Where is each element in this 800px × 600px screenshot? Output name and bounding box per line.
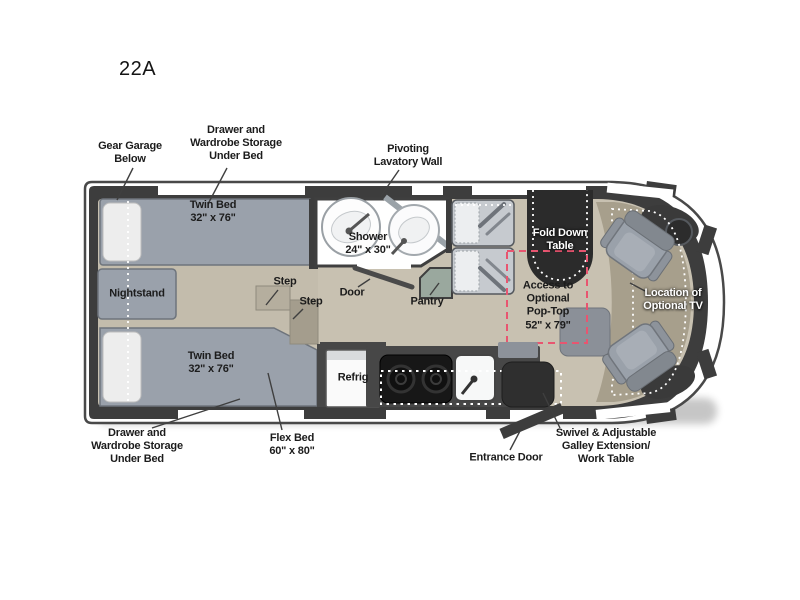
model-title: 22A (119, 58, 156, 81)
galley-extension-counter (560, 308, 610, 356)
floorplan-drawing (0, 0, 800, 600)
burner-1 (388, 366, 414, 392)
pillow-top (103, 203, 141, 261)
floorplan-page: 22A Gear Garage Below Drawer and Wardrob… (0, 0, 800, 600)
bath-door-opening (357, 262, 411, 269)
dinette-bench-1 (452, 200, 514, 246)
dinette-bench-2 (452, 248, 514, 294)
step-1-shape (256, 286, 290, 310)
counter-end (498, 342, 538, 358)
dinette-wall (446, 199, 452, 253)
fold-down-table-shape (527, 190, 593, 287)
nightstand-shape (98, 269, 176, 319)
pantry-shape (420, 268, 452, 298)
pillow-bottom (103, 332, 141, 402)
burner-2 (423, 366, 449, 392)
step-2-shape (290, 300, 318, 344)
